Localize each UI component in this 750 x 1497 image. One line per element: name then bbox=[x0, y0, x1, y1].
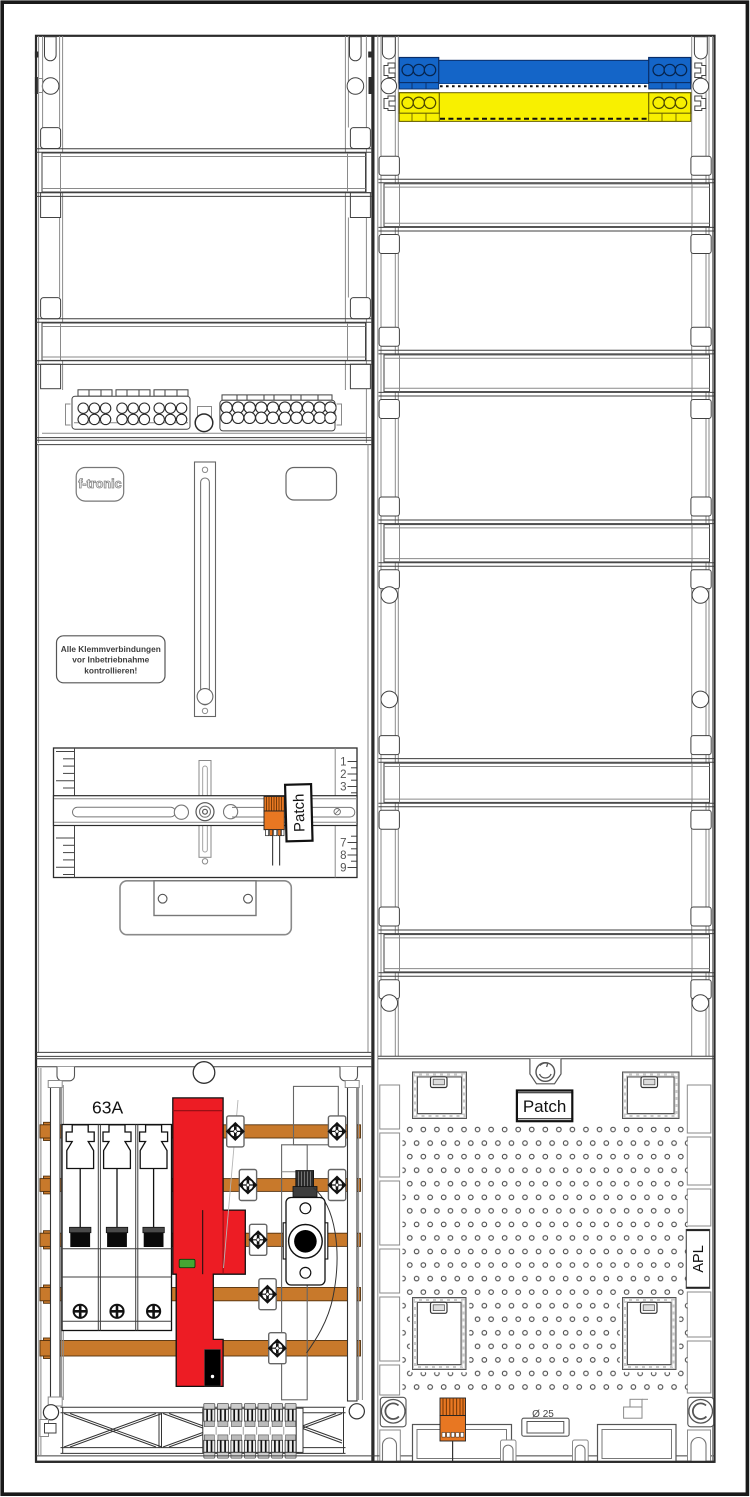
svg-text:Patch: Patch bbox=[291, 793, 309, 832]
svg-text:f-tronic: f-tronic bbox=[78, 477, 121, 491]
svg-text:7: 7 bbox=[340, 837, 346, 849]
svg-text:Alle Klemmverbindungen: Alle Klemmverbindungen bbox=[61, 644, 161, 654]
svg-text:1: 1 bbox=[340, 756, 346, 768]
svg-text:8: 8 bbox=[340, 850, 346, 862]
svg-text:vor Inbetriebnahme: vor Inbetriebnahme bbox=[72, 655, 149, 665]
svg-text:2: 2 bbox=[340, 769, 346, 781]
svg-text:9: 9 bbox=[340, 862, 346, 874]
svg-text:APL: APL bbox=[691, 1245, 707, 1272]
svg-text:3: 3 bbox=[340, 781, 346, 793]
svg-text:Patch: Patch bbox=[523, 1097, 566, 1116]
svg-text:kontrollieren!: kontrollieren! bbox=[84, 665, 137, 675]
svg-text:63A: 63A bbox=[92, 1098, 123, 1118]
